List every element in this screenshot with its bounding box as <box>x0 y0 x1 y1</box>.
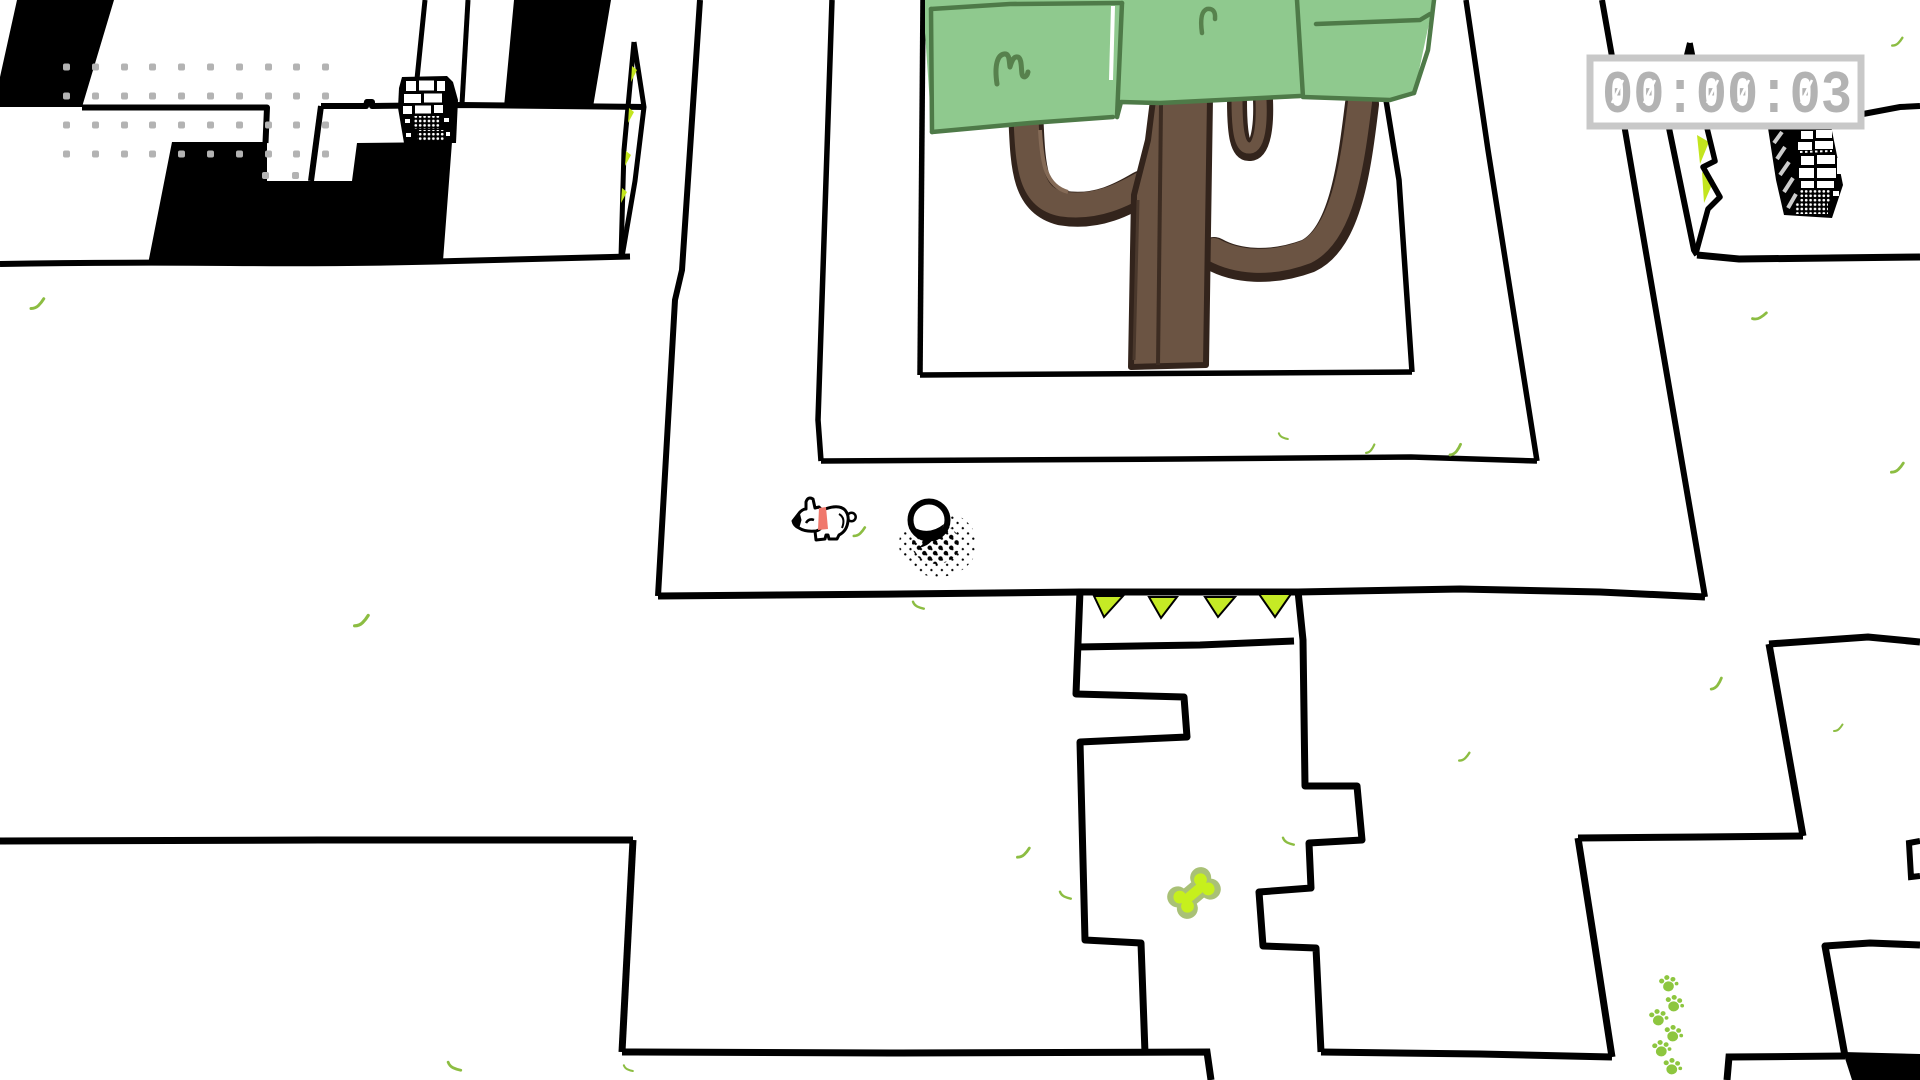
svg-text:00:00:03: 00:00:03 <box>1602 63 1852 131</box>
